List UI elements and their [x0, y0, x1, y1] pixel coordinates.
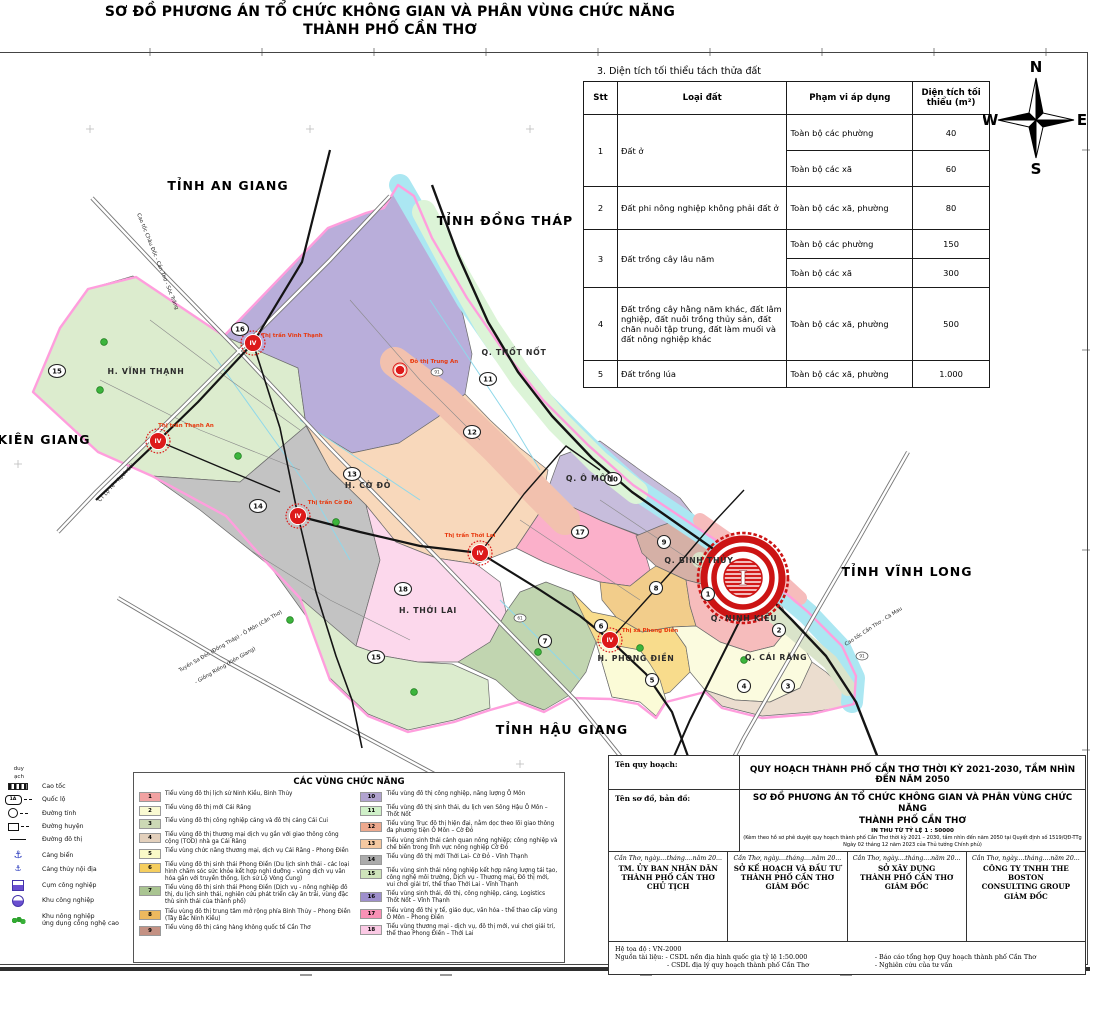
cell-scope: Toàn bộ các xã, phường: [787, 288, 913, 361]
road-label: CT Lộ Tẻ - Rạch Sỏi: [96, 462, 135, 503]
legend-swatch: 9: [139, 926, 161, 936]
zone-badge: 7: [539, 635, 552, 648]
seaport-anchor-icon: ⚓: [14, 851, 23, 861]
zone-badge: 16: [232, 323, 249, 336]
zone-badge: 5: [646, 674, 659, 687]
signature-block: Cần Thơ, ngày....tháng....năm 20...CÔNG …: [967, 852, 1085, 941]
legend-item: 4Tiểu vùng đô thị thương mại dịch vụ gắn…: [139, 832, 353, 846]
compass-rose: N S W E: [983, 58, 1089, 176]
symbol-legend-label: Khu nông nghiệp ứng dụng công nghệ cao: [42, 913, 119, 928]
province-label: KIÊN GIANG: [0, 432, 91, 447]
town-label: Đô thị Trung An: [410, 358, 458, 365]
map-name-label: Tên sơ đồ, bản đồ:: [609, 790, 740, 851]
district-label: Q. CÁI RĂNG: [745, 653, 807, 662]
svg-text:8: 8: [654, 585, 659, 593]
signature-org: SỞ XÂY DỰNGTHÀNH PHỐ CẦN THƠGIÁM ĐỐC: [848, 864, 966, 892]
district-label: Q. BÌNH THỦY: [664, 555, 733, 565]
cell-stt: 1: [584, 115, 618, 187]
zone-badge: 13: [344, 468, 361, 481]
svg-text:3: 3: [786, 683, 791, 691]
cell-scope: Toàn bộ các xã, phường: [787, 361, 913, 388]
svg-text:5: 5: [650, 677, 655, 685]
legend-swatch: 11: [360, 806, 382, 816]
symbol-legend-row: ⚓Cảng biển: [0, 851, 134, 861]
town-label: Thị trấn Thạnh An: [158, 422, 214, 429]
signature-org: SỞ KẾ HOẠCH VÀ ĐẦU TƯTHÀNH PHỐ CẦN THƠGI…: [728, 864, 846, 892]
legend-item: 8Tiểu vùng đô thị trung tâm mở rộng phía…: [139, 909, 353, 923]
provincial-road-icon: [8, 808, 18, 818]
svg-text:IV: IV: [155, 438, 162, 445]
national-road-icon: 1A: [5, 795, 22, 805]
symbol-legend-row: Khu nông nghiệp ứng dụng công nghệ cao: [0, 913, 134, 928]
zone-badge: 17: [572, 526, 589, 539]
svg-text:IV: IV: [477, 550, 484, 557]
symbol-legend-label: Khu công nghiệp: [42, 897, 94, 904]
town-label: Thị trấn Thới Lai: [445, 532, 496, 539]
zone-badge: 12: [464, 426, 481, 439]
svg-text:91: 91: [434, 370, 440, 375]
legend-item: 6Tiểu vùng đô thị sinh thái Phong Điền (…: [139, 862, 353, 883]
legend-swatch: 12: [360, 822, 382, 832]
signature-org: CÔNG TY TNHH THE BOSTONCONSULTING GROUPG…: [967, 864, 1085, 901]
svg-text:11: 11: [483, 376, 493, 384]
cell-stt: 4: [584, 288, 618, 361]
sheet-title: SƠ ĐỒ PHƯƠNG ÁN TỔ CHỨC KHÔNG GIAN VÀ PH…: [60, 3, 720, 40]
zone-badge: 6: [595, 620, 608, 633]
legend-truncated-text: duyạch: [0, 766, 134, 780]
legend-swatch: 16: [360, 892, 382, 902]
svg-text:4: 4: [742, 683, 747, 691]
zone-badge: 3: [782, 680, 795, 693]
legend-item-label: Tiểu vùng Trục đô thị hiện đại, nằm dọc …: [386, 821, 559, 835]
legend-item-label: Tiểu vùng đô thị công nghiệp cảng và đô …: [165, 818, 328, 825]
legend-swatch: 6: [139, 863, 161, 873]
legend-truncated-fragment: ạch: [0, 774, 24, 781]
legend-swatch: 14: [360, 855, 382, 865]
legend-swatch: 15: [360, 869, 382, 879]
signature-org: TM. ỦY BAN NHÂN DÂNTHÀNH PHỐ CẦN THƠCHỦ …: [609, 864, 727, 892]
svg-text:6: 6: [599, 623, 604, 631]
cell-land: Đất trồng lúa: [617, 361, 787, 388]
symbol-legend-label: Đường đô thị: [42, 836, 82, 843]
legend-item: 13Tiểu vùng sinh thái cảnh quan nông ngh…: [360, 838, 559, 852]
zone-badge: 9: [658, 536, 671, 549]
svg-text:1: 1: [706, 591, 711, 599]
cell-area: 80: [913, 187, 990, 230]
symbol-legend-row: ⚓Cảng thủy nội địa: [0, 864, 134, 874]
legend-item-label: Tiểu vùng đô thị mới Cái Răng: [165, 805, 251, 812]
col-header-stt: Stt: [584, 82, 618, 115]
town-label: Thị trấn Vĩnh Thạnh: [261, 332, 323, 339]
signature-block: Cần Thơ, ngày....tháng....năm 20...SỞ XÂ…: [848, 852, 967, 941]
symbol-legend-label: Cụm công nghiệp: [42, 882, 96, 889]
col-header-land: Loại đất: [617, 82, 787, 115]
zone-badge: 8: [650, 582, 663, 595]
zone-badge: 15: [368, 651, 385, 664]
svg-text:16: 16: [235, 326, 245, 334]
sheet-title-line2: THÀNH PHỐ CẦN THƠ: [60, 21, 720, 39]
legend-item: 18Tiểu vùng thương mại - dịch vụ, đô thị…: [360, 924, 559, 938]
legend-item-label: Tiểu vùng đô thị sinh thái, du lịch ven …: [386, 805, 559, 819]
legend-item: 7Tiểu vùng đô thị sinh thái Phong Điền (…: [139, 885, 353, 906]
plan-name-value: QUY HOẠCH THÀNH PHỐ CẦN THƠ THỜI KỲ 2021…: [740, 756, 1085, 789]
min-parcel-area-table: 3. Diện tích tối thiểu tách thửa đất Stt…: [583, 66, 990, 388]
compass-e: E: [1077, 111, 1087, 129]
industrial-zone-icon: [535, 649, 542, 656]
legend-swatch: 8: [139, 910, 161, 920]
zone-badge: 4: [738, 680, 751, 693]
cell-scope: Toàn bộ các phường: [787, 230, 913, 259]
cell-scope: Toàn bộ các phường: [787, 115, 913, 151]
cell-area: 500: [913, 288, 990, 361]
cell-stt: 3: [584, 230, 618, 288]
legend-item: 11Tiểu vùng đô thị sinh thái, du lịch ve…: [360, 805, 559, 819]
legend-item-label: Tiểu vùng sinh thái nông nghiệp kết hợp …: [386, 868, 559, 889]
cell-scope: Toàn bộ các xã, phường: [787, 187, 913, 230]
symbol-legend-row: Đường tỉnh: [0, 808, 134, 818]
industrial-cluster-icon: [12, 880, 24, 891]
print-scale: IN THU TỪ TỶ LỆ 1 : 50000: [740, 828, 1085, 834]
zone-badge: 11: [480, 373, 497, 386]
province-label: TỈNH HẬU GIANG: [496, 721, 628, 737]
legend-item-label: Tiểu vùng đô thị sinh thái Phong Điền (D…: [165, 885, 353, 906]
cell-area: 300: [913, 259, 990, 288]
compass-w: W: [983, 111, 999, 129]
svg-text:9: 9: [662, 539, 667, 547]
legend-item: 12Tiểu vùng Trục đô thị hiện đại, nằm dọ…: [360, 821, 559, 835]
legend-swatch: 17: [360, 909, 382, 919]
symbol-legend-row: 1AQuốc lộ: [0, 795, 134, 805]
legend-item: 15Tiểu vùng sinh thái nông nghiệp kết hợ…: [360, 868, 559, 889]
hitech-agriculture-icon: [11, 916, 26, 925]
cell-area: 150: [913, 230, 990, 259]
data-source-line2: - CSDL địa lý quy hoạch thành phố Cần Th…: [667, 961, 875, 969]
legend-item-label: Tiểu vùng đô thị thương mại dịch vụ gắn …: [165, 832, 353, 846]
legend-item-label: Tiểu vùng đô thị trung tâm mở rộng phía …: [165, 909, 353, 923]
legend-item: 5Tiểu vùng chức năng thương mại, dịch vụ…: [139, 848, 353, 859]
cell-land: Đất trồng cây hằng năm khác, đất lâm ngh…: [617, 288, 787, 361]
svg-text:15: 15: [371, 654, 381, 662]
coordinate-system: Hệ tọa độ : VN-2000: [615, 945, 875, 953]
compass-s: S: [1031, 160, 1042, 176]
svg-text:IV: IV: [607, 637, 614, 644]
symbol-legend-row: Cao tốc: [0, 781, 134, 791]
legend-swatch: 13: [360, 839, 382, 849]
industrial-zone-icon: [235, 453, 242, 460]
legend-truncated-fragment: duy: [0, 766, 24, 773]
symbol-legend-row: Đường đô thị: [0, 835, 134, 845]
signature-date-line: Cần Thơ, ngày....tháng....năm 20...: [848, 855, 966, 862]
zone-badge: 15: [49, 365, 66, 378]
title-block-footer: Hệ tọa độ : VN-2000 Nguồn tài liệu: - CS…: [609, 942, 1085, 974]
legend-swatch: 4: [139, 833, 161, 843]
legend-item: 10Tiểu vùng đô thị công nghiệp, năng lượ…: [360, 791, 559, 802]
legend-swatch: 18: [360, 925, 382, 935]
legend-item: 9Tiểu vùng đô thị cảng hàng không quốc t…: [139, 925, 353, 936]
map-name-line1: SƠ ĐỒ PHƯƠNG ÁN TỔ CHỨC KHÔNG GIAN VÀ PH…: [740, 790, 1085, 816]
legend-item: 16Tiểu vùng sinh thái, đô thị, công nghi…: [360, 891, 559, 905]
legend-swatch: 1: [139, 792, 161, 802]
urban-road-icon: [10, 839, 26, 840]
legend-item: 2Tiểu vùng đô thị mới Cái Răng: [139, 805, 353, 816]
signature-block: Cần Thơ, ngày....tháng....năm 20...SỞ KẾ…: [728, 852, 847, 941]
svg-text:17: 17: [575, 529, 585, 537]
legend-item: 14Tiểu vùng đô thị mới Thới Lai- Cờ Đỏ -…: [360, 854, 559, 865]
legend-item-label: Tiểu vùng đô thị lịch sử Ninh Kiều, Bình…: [165, 791, 292, 798]
functional-zones-legend: CÁC VÙNG CHỨC NĂNG 1Tiểu vùng đô thị lịc…: [133, 772, 565, 963]
svg-text:13: 13: [347, 471, 357, 479]
cell-area: 40: [913, 115, 990, 151]
city-center-grade-label: I: [738, 566, 747, 590]
symbol-legend-row: Đường huyện: [0, 822, 134, 832]
svg-text:IV: IV: [250, 340, 257, 347]
cell-area: 1.000: [913, 361, 990, 388]
col-header-area: Diện tích tối thiểu (m²): [913, 82, 990, 115]
table-caption: 3. Diện tích tối thiểu tách thửa đất: [597, 66, 990, 77]
plan-name-label: Tên quy hoạch:: [609, 756, 740, 789]
cell-land: Đất trồng cây lâu năm: [617, 230, 787, 288]
symbol-legend-label: Cao tốc: [42, 783, 65, 790]
district-label: H. PHONG ĐIỀN: [597, 653, 674, 663]
signature-date-line: Cần Thơ, ngày....tháng....năm 20...: [728, 855, 846, 862]
town-label: Thị trấn Cờ Đỏ: [308, 499, 353, 506]
symbol-legend-label: Đường huyện: [42, 823, 84, 830]
industrial-zone-icon: [333, 519, 340, 526]
district-label: H. CỜ ĐỎ: [345, 480, 391, 490]
signature-date-line: Cần Thơ, ngày....tháng....năm 20...: [967, 855, 1085, 862]
route-shield: 91: [431, 368, 443, 376]
legend-title: CÁC VÙNG CHỨC NĂNG: [139, 777, 559, 787]
route-shield: 61: [514, 614, 526, 622]
road-dash: [20, 813, 28, 814]
map-name-line2: THÀNH PHỐ CẦN THƠ: [740, 816, 1085, 827]
cell-scope: Toàn bộ các xã: [787, 259, 913, 288]
legend-item-label: Tiểu vùng đô thị y tế, giáo dục, văn hóa…: [386, 908, 559, 922]
symbol-legend-label: Đường tỉnh: [42, 810, 76, 817]
legend-swatch: 7: [139, 886, 161, 896]
inland-port-anchor-icon: ⚓: [14, 865, 21, 873]
industrial-zone-icon: [12, 895, 24, 907]
province-label: TỈNH VĨNH LONG: [842, 563, 973, 579]
legend-item-label: Tiểu vùng đô thị sinh thái Phong Điền (D…: [165, 862, 353, 883]
svg-text:12: 12: [467, 429, 477, 437]
district-label: Q. THỐT NỐT: [482, 347, 547, 357]
road-label: - Giồng Riềng (Kiên Giang): [193, 644, 257, 685]
svg-text:61: 61: [517, 616, 523, 621]
zone-badge: 18: [395, 583, 412, 596]
legend-swatch: 10: [360, 792, 382, 802]
zone-badge: 2: [773, 624, 786, 637]
district-label: H. THỚI LAI: [399, 606, 457, 615]
legend-item-label: Tiểu vùng đô thị mới Thới Lai- Cờ Đỏ - V…: [386, 854, 527, 861]
industrial-zone-icon: [97, 387, 104, 394]
cell-area: 60: [913, 151, 990, 187]
province-label: TỈNH AN GIANG: [167, 177, 288, 193]
province-label: TỈNH ĐỒNG THÁP: [437, 211, 573, 228]
legend-item-label: Tiểu vùng chức năng thương mại, dịch vụ …: [165, 848, 349, 855]
road-label: Cao tốc Cần Thơ - Cà Mau: [843, 604, 904, 647]
legend-item-label: Tiểu vùng thương mại - dịch vụ, đô thị m…: [386, 924, 559, 938]
cell-scope: Toàn bộ các xã: [787, 151, 913, 187]
district-label: Q. NINH KIỀU: [711, 613, 778, 623]
industrial-zone-icon: [287, 617, 294, 624]
road-dash: [21, 826, 29, 827]
district-label: Q. Ô MÔN: [566, 474, 614, 483]
svg-text:2: 2: [777, 627, 782, 635]
legend-item-label: Tiểu vùng sinh thái, đô thị, công nghiệp…: [386, 891, 559, 905]
signature-block: Cần Thơ, ngày....tháng....năm 20...TM. Ủ…: [609, 852, 728, 941]
town-label: Thị xã Phong Điền: [622, 626, 678, 634]
decision-note-line2: Ngày 02 tháng 12 năm 2023 của Thủ tướng …: [740, 842, 1085, 848]
svg-text:IV: IV: [295, 513, 302, 520]
symbol-legend-label: Quốc lộ: [42, 796, 65, 803]
road-dash: [24, 799, 32, 800]
district-label: H. VĨNH THẠNH: [108, 367, 185, 376]
zone-badge: 14: [250, 500, 267, 513]
symbol-legend-label: Cảng thủy nội địa: [42, 866, 97, 873]
svg-text:7: 7: [543, 638, 548, 646]
signature-date-line: Cần Thơ, ngày....tháng....năm 20...: [609, 855, 727, 862]
legend-item-label: Tiểu vùng sinh thái cảnh quan nông nghiệ…: [386, 838, 559, 852]
symbol-legend-row: Cụm công nghiệp: [0, 880, 134, 891]
svg-text:14: 14: [253, 503, 263, 511]
cell-land: Đất ở: [617, 115, 787, 187]
district-road-icon: [8, 823, 19, 831]
compass-n: N: [1030, 58, 1043, 76]
svg-text:15: 15: [52, 368, 62, 376]
data-source-right1: - Báo cáo tổng hợp Quy hoạch thành phố C…: [875, 953, 1079, 961]
legend-swatch: 5: [139, 849, 161, 859]
route-shield: 91: [856, 652, 868, 660]
industrial-zone-icon: [411, 689, 418, 696]
svg-text:91: 91: [859, 654, 865, 659]
legend-item: 1Tiểu vùng đô thị lịch sử Ninh Kiều, Bìn…: [139, 791, 353, 802]
legend-item: 17Tiểu vùng đô thị y tế, giáo dục, văn h…: [360, 908, 559, 922]
symbols-legend: duyạch Cao tốc1AQuốc lộĐường tỉnhĐường h…: [0, 766, 134, 931]
symbol-legend-row: Khu công nghiệp: [0, 895, 134, 907]
legend-swatch: 2: [139, 806, 161, 816]
cell-land: Đất phi nông nghiệp không phải đất ở: [617, 187, 787, 230]
legend-item-label: Tiểu vùng đô thị cảng hàng không quốc tế…: [165, 925, 311, 932]
cell-stt: 2: [584, 187, 618, 230]
zone-badge: 1: [702, 588, 715, 601]
decision-note-line1: (Kèm theo hồ sơ phê duyệt quy hoạch thàn…: [740, 835, 1085, 841]
legend-swatch: 3: [139, 819, 161, 829]
title-block: Tên quy hoạch: QUY HOẠCH THÀNH PHỐ CẦN T…: [608, 755, 1086, 975]
compass-star-icon: [998, 78, 1074, 158]
sheet-title-line1: SƠ ĐỒ PHƯƠNG ÁN TỔ CHỨC KHÔNG GIAN VÀ PH…: [60, 3, 720, 21]
svg-text:18: 18: [398, 586, 408, 594]
industrial-zone-icon: [101, 339, 108, 346]
symbol-legend-label: Cảng biển: [42, 852, 73, 859]
data-source-right2: - Nghiên cứu của tư vấn: [875, 961, 1079, 969]
cell-stt: 5: [584, 361, 618, 388]
legend-item-label: Tiểu vùng đô thị công nghiệp, năng lượng…: [386, 791, 525, 798]
legend-item: 3Tiểu vùng đô thị công nghiệp cảng và đô…: [139, 818, 353, 829]
expressway-icon: [8, 783, 28, 790]
col-header-scope: Phạm vi áp dụng: [787, 82, 913, 115]
industrial-zone-icon: [637, 645, 644, 652]
